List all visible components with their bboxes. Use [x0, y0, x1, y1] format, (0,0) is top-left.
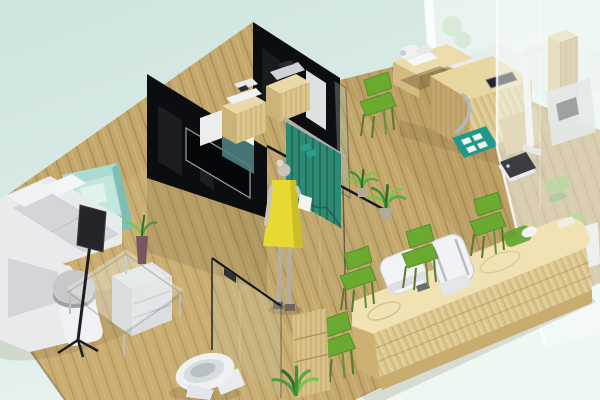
plant-vase [136, 236, 148, 264]
person-hair-bun [277, 160, 284, 167]
scene-stage: Isometric 3D rendering of a clinic inter… [0, 0, 600, 400]
stand-display [77, 205, 106, 252]
clinic-render [0, 0, 600, 400]
person-leg [286, 247, 292, 306]
